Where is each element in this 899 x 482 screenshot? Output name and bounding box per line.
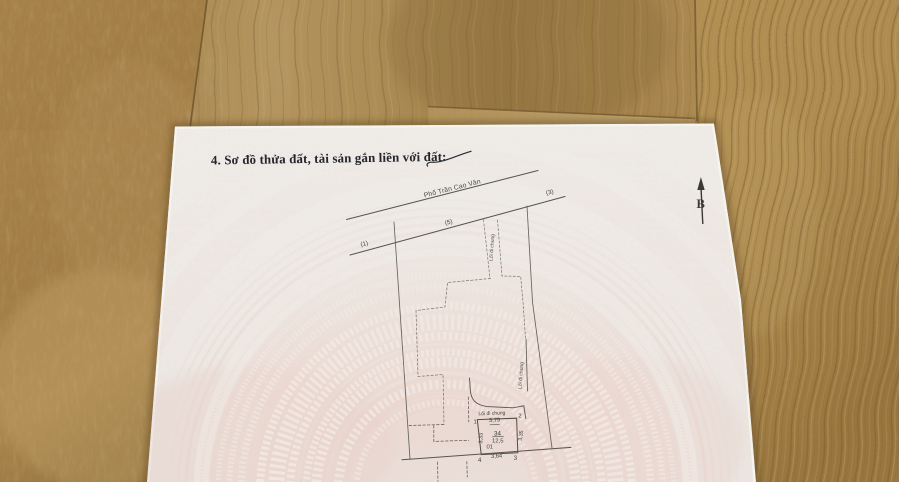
svg-text:3,33: 3,33 xyxy=(478,433,485,444)
svg-text:01: 01 xyxy=(487,444,494,450)
svg-text:12,5: 12,5 xyxy=(492,438,504,444)
svg-text:2: 2 xyxy=(518,414,521,420)
svg-text:Lối đi chung: Lối đi chung xyxy=(478,410,505,417)
svg-text:3,79: 3,79 xyxy=(489,418,500,424)
svg-text:1: 1 xyxy=(474,420,477,426)
svg-text:3,64: 3,64 xyxy=(491,453,503,460)
svg-text:B: B xyxy=(697,197,705,211)
svg-text:3,35: 3,35 xyxy=(518,430,525,441)
svg-text:34: 34 xyxy=(494,430,501,437)
